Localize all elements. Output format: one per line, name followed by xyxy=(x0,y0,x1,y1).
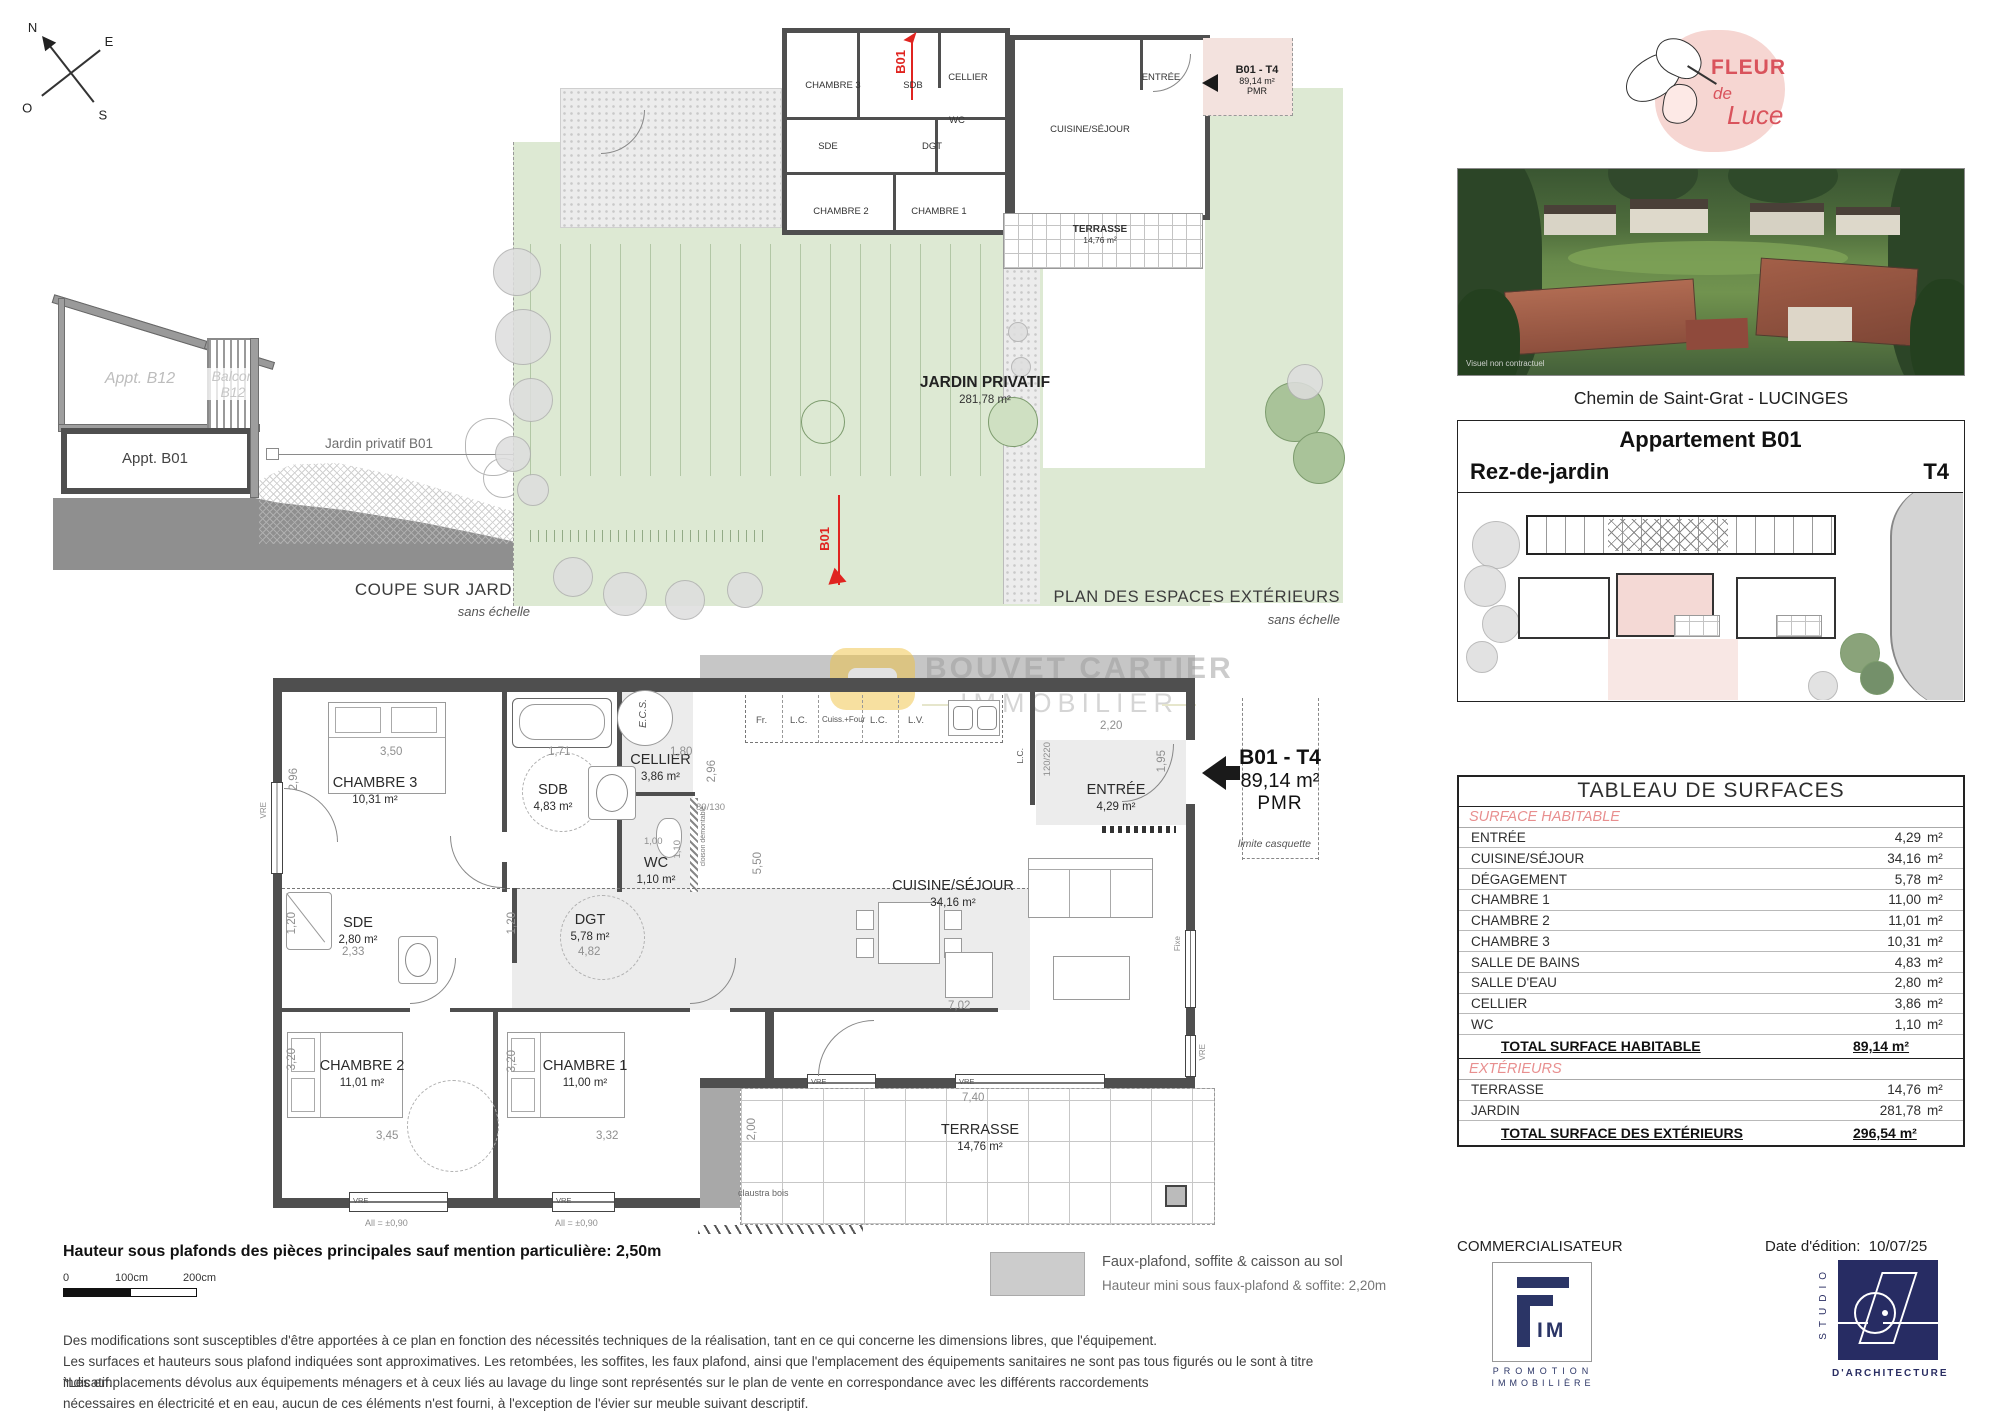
wall xyxy=(450,1008,690,1012)
tree xyxy=(493,248,541,296)
studio-glyph-wave xyxy=(1838,1322,1938,1324)
room-sde: SDE 2,80 m² xyxy=(318,915,398,947)
table-row: DÉGAGEMENT5,78m² xyxy=(1459,869,1963,890)
tree xyxy=(603,572,647,616)
wall xyxy=(282,1008,410,1012)
furniture-bathtub xyxy=(512,698,612,748)
dim: 3,20 xyxy=(286,1048,298,1070)
dim: 2,33 xyxy=(342,946,364,958)
tree xyxy=(1860,661,1894,695)
apartment-level: Rez-de-jardin xyxy=(1470,459,1609,485)
disclaimer-line: Des modifications sont susceptibles d'êt… xyxy=(63,1330,1363,1351)
wall xyxy=(782,117,1010,120)
table-row: ENTRÉE4,29m² xyxy=(1459,828,1963,849)
room-cuisine: CUISINE/SÉJOUR 34,16 m² xyxy=(883,878,1023,910)
project-photo: Visuel non contractuel xyxy=(1457,168,1965,376)
kitchen-divider xyxy=(898,695,899,743)
dim: 2,96 xyxy=(706,760,718,782)
b01-marker: B01 xyxy=(817,527,832,551)
dim: 80/130 xyxy=(696,802,725,813)
site-road xyxy=(1890,493,1963,700)
unit-tag: B01 - T4 89,14 m² PMR xyxy=(1215,746,1345,815)
window-label-fixe: Fixe xyxy=(1173,936,1182,951)
tag-dash xyxy=(1242,858,1318,859)
appliance-dishwasher: L.V. xyxy=(908,715,924,726)
dim: 4,82 xyxy=(578,946,600,958)
tree xyxy=(1472,521,1520,569)
tree xyxy=(1293,432,1345,484)
label-chambre2: CHAMBRE 2 xyxy=(806,206,876,217)
window-label: VRE xyxy=(556,1196,571,1205)
appliance-fridge: Fr. xyxy=(756,715,767,726)
terrasse-tiles xyxy=(740,1088,1215,1225)
room-terrasse: TERRASSE 14,76 m² xyxy=(920,1122,1040,1154)
dim: 3,45 xyxy=(376,1130,398,1142)
table-row: SALLE D'EAU2,80m² xyxy=(1459,973,1963,994)
wall xyxy=(273,678,1195,692)
apartment-type: T4 xyxy=(1923,459,1949,485)
scale-segment xyxy=(130,1288,197,1297)
studio-glyph-dot xyxy=(1882,1310,1888,1316)
wall xyxy=(58,298,65,432)
label-cuisine: CUISINE/SÉJOUR xyxy=(1045,124,1135,135)
tree xyxy=(1466,641,1498,673)
garden-area xyxy=(1035,468,1210,606)
studio-caption: D'ARCHITECTURE xyxy=(1832,1368,1944,1379)
coupe-caption-sub: sans échelle xyxy=(245,604,530,619)
furniture-armchair xyxy=(945,952,993,998)
dim: 3,32 xyxy=(596,1130,618,1142)
scale-tick: 0 xyxy=(63,1272,69,1284)
apartment-card: Appartement B01 Rez-de-jardin T4 xyxy=(1457,420,1965,702)
legend-swatch xyxy=(990,1252,1085,1296)
plan-sheet: N S E O Appt. B12 Balcon B12 Appt. B01 xyxy=(0,0,2000,1413)
compass-o: O xyxy=(22,100,32,115)
label-appt-b12: Appt. B12 xyxy=(85,370,195,388)
furniture-table xyxy=(878,902,940,964)
label-jardin-privatif: JARDIN PRIVATIF 281,78 m² xyxy=(900,374,1070,406)
photo-tree xyxy=(1728,168,1838,203)
dim: 3,50 xyxy=(380,746,402,758)
scale-tick: 100cm xyxy=(115,1272,148,1284)
wall xyxy=(857,28,860,117)
ecs-tank: E.C.S. xyxy=(617,690,673,746)
garden-area xyxy=(1205,88,1343,603)
room-sdb: SDB 4,83 m² xyxy=(518,782,588,814)
window-label: VRE xyxy=(959,1077,974,1086)
wall xyxy=(273,1198,773,1208)
dim: 120/220 xyxy=(1042,742,1053,776)
apartment-title: Appartement B01 xyxy=(1458,427,1963,453)
wall xyxy=(502,692,507,832)
photo-house xyxy=(1630,199,1708,233)
dim: 7,02 xyxy=(948,1000,970,1012)
tree xyxy=(1287,364,1323,400)
dim: 2,20 xyxy=(1100,720,1122,732)
photo-gable xyxy=(1788,307,1852,341)
allege-note: All = ±0,90 xyxy=(555,1218,598,1228)
photo-house xyxy=(1750,203,1824,235)
garden-extent-line xyxy=(275,454,521,455)
commercialisateur-label: COMMERCIALISATEUR xyxy=(1457,1238,1623,1255)
entry-arrow xyxy=(1202,74,1218,92)
compass-s: S xyxy=(98,107,107,122)
photo-roof-foreground xyxy=(1504,278,1698,355)
tree xyxy=(1482,605,1520,643)
tree xyxy=(801,400,845,444)
label-dgt: DGT xyxy=(912,141,952,152)
wall xyxy=(700,1078,1195,1088)
garden-fence xyxy=(530,530,768,542)
allege-note: All = ±0,90 xyxy=(365,1218,408,1228)
site-garden-b01 xyxy=(1608,639,1738,700)
tree xyxy=(553,557,593,597)
label-sde: SDE xyxy=(808,141,848,152)
tree xyxy=(1464,565,1506,607)
tree xyxy=(1008,322,1028,342)
table-row: CUISINE/SÉJOUR34,16m² xyxy=(1459,848,1963,869)
appliance-lc: L.C. xyxy=(790,715,807,726)
arrowhead xyxy=(267,449,278,459)
table-row: JARDIN281,78m² xyxy=(1459,1101,1963,1122)
b01-marker: B01 xyxy=(893,50,908,74)
coupe-caption: COUPE SUR JARDIN xyxy=(245,580,530,600)
door-mat xyxy=(1102,826,1176,833)
window xyxy=(271,782,283,874)
wall xyxy=(250,338,259,498)
fim-caption: PROMOTION IMMOBILIÈRE xyxy=(1478,1366,1608,1388)
tree xyxy=(727,572,763,608)
photo-house xyxy=(1836,207,1900,235)
compass-rose: N S E O xyxy=(28,30,114,116)
dim: 2,00 xyxy=(746,1118,758,1140)
total-habitable-row: TOTAL SURFACE HABITABLE89,14 m² xyxy=(1459,1035,1963,1059)
tree xyxy=(495,436,531,472)
tree xyxy=(1808,671,1838,700)
compass-e: E xyxy=(105,34,114,49)
label-jardin-privatif-b01: Jardin privatif B01 xyxy=(325,436,433,451)
surface-table-title: TABLEAU DE SURFACES xyxy=(1459,777,1963,807)
window xyxy=(1185,930,1196,1008)
apartment-card-header: Appartement B01 Rez-de-jardin T4 xyxy=(1458,421,1963,493)
dim: 5,50 xyxy=(752,852,764,874)
photo-shed xyxy=(1685,318,1748,350)
limite-casquette-note: limite casquette xyxy=(1238,838,1311,850)
scale-segment xyxy=(63,1288,130,1297)
dim: 1,10 xyxy=(672,840,683,859)
site-unit xyxy=(1518,577,1610,639)
furniture-chair xyxy=(856,910,874,930)
fleur-de-luce-logo: FLEUR de Luce xyxy=(1615,18,1805,168)
fim-logo: IM xyxy=(1492,1262,1592,1362)
label-wc: WC xyxy=(943,115,971,126)
exterior-plan-caption-sub: sans échelle xyxy=(1050,612,1340,627)
dim: 1,71 xyxy=(548,746,570,758)
dim: 2,96 xyxy=(288,768,300,790)
compass-needle xyxy=(41,49,101,96)
door-arc xyxy=(818,1020,874,1076)
kitchen-divider xyxy=(782,695,783,743)
photo-house xyxy=(1544,205,1616,235)
total-exterieurs-row: TOTAL SURFACE DES EXTÉRIEURS296,54 m² xyxy=(1459,1121,1963,1145)
dim: 3,20 xyxy=(506,1050,518,1072)
unit-tag: B01 - T4 89,14 m² PMR xyxy=(1217,64,1297,96)
site-building-upper-hatch xyxy=(1608,519,1728,551)
table-row: TERRASSE14,76m² xyxy=(1459,1080,1963,1101)
scale-tick: 200cm xyxy=(183,1272,216,1284)
appliance-lc: L.C. xyxy=(870,715,887,726)
fim-glyph-bar xyxy=(1517,1277,1569,1288)
window xyxy=(1185,1035,1196,1077)
kitchen-divider xyxy=(818,695,819,743)
photo-tree xyxy=(1608,168,1698,203)
label-cellier: CELLIER xyxy=(941,72,995,83)
dim: 1,20 xyxy=(286,912,298,934)
claustra-hatch xyxy=(698,1225,863,1234)
studio-glyph-circle xyxy=(1854,1292,1896,1334)
logo-word-fleur: FLEUR xyxy=(1711,56,1786,80)
studio-logo xyxy=(1838,1260,1938,1360)
wall xyxy=(273,678,282,1208)
table-row: WC1,10m² xyxy=(1459,1014,1963,1035)
disclaimer-line: nécessaires en électricité et en eau, au… xyxy=(63,1393,1363,1413)
scale-bar: 0 100cm 200cm xyxy=(63,1272,263,1302)
compass-n: N xyxy=(28,20,37,35)
site-plan xyxy=(1458,493,1963,700)
table-row: SALLE DE BAINS4,83m² xyxy=(1459,952,1963,973)
room-chambre3: CHAMBRE 3 10,31 m² xyxy=(315,775,435,807)
dim: 1,00 xyxy=(644,836,663,847)
label-entree: ENTRÉE xyxy=(1131,72,1191,83)
label-appt-b01: Appt. B01 xyxy=(95,450,215,467)
studio-vertical-label: STUDIO xyxy=(1818,1266,1829,1340)
dim: 1,80 xyxy=(670,746,692,758)
section-coupe-jardin: Appt. B12 Balcon B12 Appt. B01 Jardin pr… xyxy=(45,210,535,575)
dim: 1,95 xyxy=(1156,750,1168,772)
cloison-note: cloison démontable xyxy=(700,806,707,866)
legend-line2: Hauteur mini sous faux-plafond & soffite… xyxy=(1102,1278,1386,1293)
section-exterieurs: EXTÉRIEURS xyxy=(1459,1059,1963,1080)
appliance-lc: L.C. xyxy=(1015,748,1025,764)
path xyxy=(560,88,782,228)
furniture-chair xyxy=(856,938,874,958)
site-terrace xyxy=(1776,615,1822,637)
label-chambre1: CHAMBRE 1 xyxy=(904,206,974,217)
appliance-oven: Cuiss.+Four xyxy=(822,715,865,724)
wall xyxy=(1030,687,1035,805)
fim-mark: IM xyxy=(1537,1319,1566,1343)
furniture-coffee-table xyxy=(1053,956,1130,1000)
room-entree: ENTRÉE 4,29 m² xyxy=(1066,782,1166,814)
pmr-turning-circle xyxy=(407,1080,499,1172)
furniture-washbasin xyxy=(398,936,438,984)
ceiling-height-note: Hauteur sous plafonds des pièces princip… xyxy=(63,1243,661,1261)
garden-boundary xyxy=(513,142,514,606)
window-label: VRE xyxy=(1198,1044,1207,1060)
exterior-plan: TERRASSE 14,76 m² B01 - T4 89,14 m² PMR … xyxy=(505,22,1350,640)
disclaimer-line: *Les emplacements dévolus aux équipement… xyxy=(63,1372,1363,1393)
table-row: CHAMBRE 111,00m² xyxy=(1459,890,1963,911)
photo-caption: Chemin de Saint-Grat - LUCINGES xyxy=(1457,388,1965,409)
tree xyxy=(509,378,553,422)
furniture-sofa xyxy=(1028,858,1153,918)
fim-glyph-stem xyxy=(1517,1295,1530,1347)
dim: 1,20 xyxy=(506,912,518,934)
terrasse-side-wall xyxy=(700,1088,740,1208)
legend-line1: Faux-plafond, soffite & caisson au sol xyxy=(1102,1254,1343,1270)
label-chambre3: CHAMBRE 3 xyxy=(798,80,868,91)
table-row: CHAMBRE 310,31m² xyxy=(1459,931,1963,952)
tree xyxy=(517,474,549,506)
logo-word-luce: Luce xyxy=(1727,100,1783,131)
window-label: VRE xyxy=(811,1077,826,1086)
kitchen-sink xyxy=(948,700,1000,736)
wall xyxy=(893,172,896,235)
terrasse-detail xyxy=(1165,1185,1187,1207)
exterior-plan-caption: PLAN DES ESPACES EXTÉRIEURS xyxy=(1050,588,1340,607)
room-wc: WC 1,10 m² xyxy=(632,855,680,887)
surface-table: TABLEAU DE SURFACES SURFACE HABITABLE EN… xyxy=(1457,775,1965,1147)
furniture-chair xyxy=(944,910,962,930)
edition-date: Date d'édition: 10/07/25 xyxy=(1765,1238,1927,1255)
window-label: VRE xyxy=(353,1196,368,1205)
tree xyxy=(665,580,705,620)
door-arc xyxy=(450,836,502,888)
room-chambre1: CHAMBRE 1 11,00 m² xyxy=(525,1058,645,1090)
table-row: CELLIER3,86m² xyxy=(1459,994,1963,1015)
roof xyxy=(52,294,212,351)
door-gap xyxy=(1186,740,1195,804)
window-label: VRE xyxy=(259,802,268,818)
site-terrace xyxy=(1674,615,1720,637)
main-floor-plan: BOUVET CARTIER IMMOBILIER VRE xyxy=(260,640,1370,1265)
label-terrasse: TERRASSE 14,76 m² xyxy=(1045,224,1155,245)
room-chambre2: CHAMBRE 2 11,01 m² xyxy=(302,1058,422,1090)
table-row: CHAMBRE 211,01m² xyxy=(1459,911,1963,932)
photo-watermark: Visuel non contractuel xyxy=(1466,359,1545,368)
tree xyxy=(495,309,551,365)
claustra-note: claustra bois xyxy=(738,1188,789,1198)
room-dgt: DGT 5,78 m² xyxy=(550,912,630,944)
dim: 7,40 xyxy=(962,1092,984,1104)
label-sdb: SDB xyxy=(893,80,933,91)
wall xyxy=(782,172,1010,175)
garden-hatch xyxy=(530,244,1027,476)
section-habitable: SURFACE HABITABLE xyxy=(1459,807,1963,828)
